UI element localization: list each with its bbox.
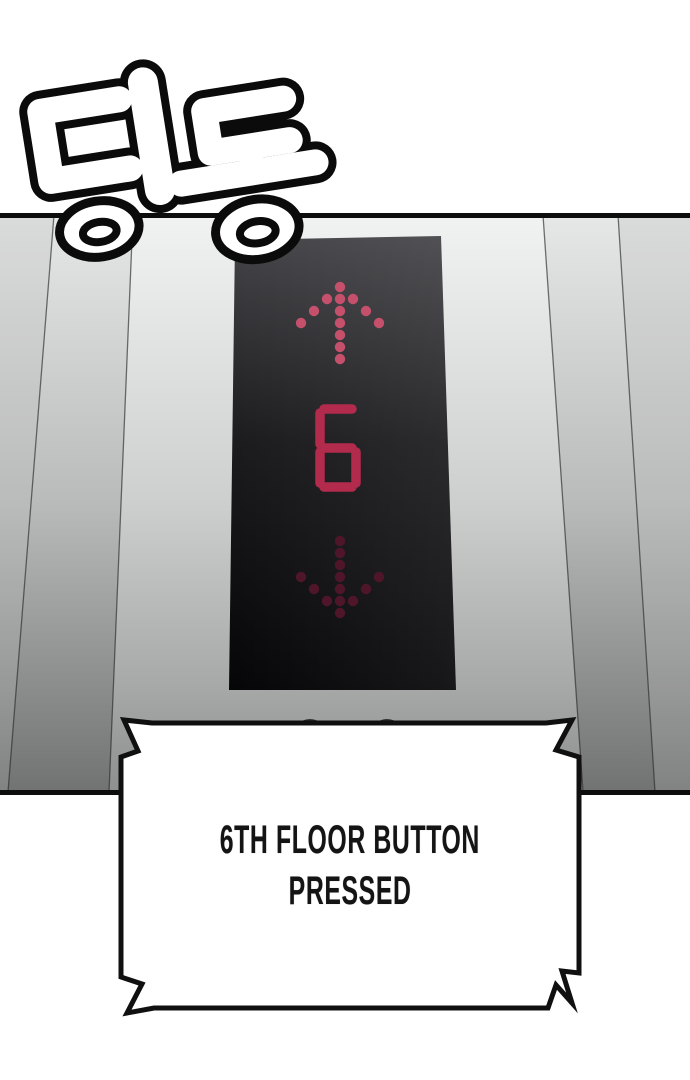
caption-text-line: 6TH FLOOR BUTTON	[220, 817, 480, 863]
caption-text-line: PRESSED	[289, 868, 412, 914]
caption-box-text: 6TH FLOOR BUTTON PRESSED	[121, 727, 579, 1003]
elevator-floor-indicator-panel	[229, 236, 456, 690]
webtoon-panel: 6TH FLOOR BUTTON PRESSED 딩동 6	[0, 0, 690, 1080]
